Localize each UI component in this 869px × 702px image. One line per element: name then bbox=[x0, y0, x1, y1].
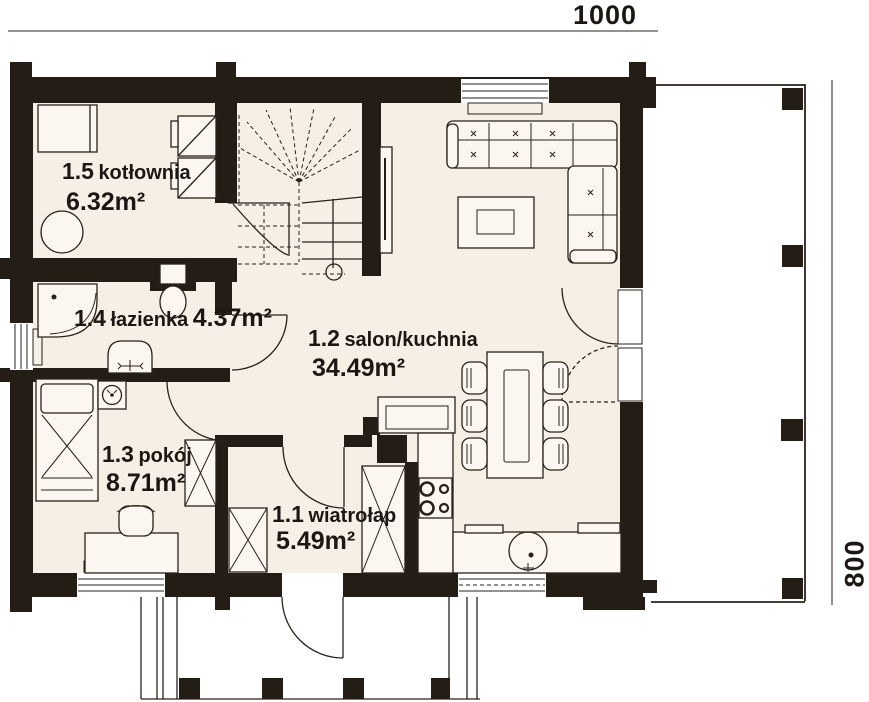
tv-cabinet bbox=[380, 147, 392, 253]
room-label-boiler-room: 1.5 kotłownia bbox=[62, 160, 191, 183]
room-area: 4.37m² bbox=[193, 304, 272, 332]
room-code: 1.3 bbox=[102, 441, 134, 467]
room-area-living-kitchen: 34.49m² bbox=[312, 356, 405, 381]
coffee-table bbox=[458, 197, 534, 248]
room-code: 1.1 bbox=[272, 501, 304, 527]
room-code: 1.5 bbox=[62, 158, 94, 184]
bed bbox=[36, 379, 98, 501]
floor-plan-drawing bbox=[0, 0, 869, 702]
porch-post bbox=[431, 678, 450, 699]
dining-table bbox=[487, 352, 543, 478]
dimension-depth: 800 bbox=[842, 529, 869, 599]
terrace-post bbox=[781, 419, 803, 441]
dimension-width: 1000 bbox=[560, 2, 650, 29]
window-kitchen-bottom bbox=[458, 573, 546, 597]
room-code: 1.2 bbox=[308, 325, 340, 351]
room-name: wiatrołap bbox=[308, 505, 396, 527]
room-label-bathroom: 1.4 łazienka 4.37m² bbox=[74, 306, 272, 331]
room-area-vestibule: 5.49m² bbox=[276, 529, 355, 554]
room-name: pokój bbox=[138, 445, 191, 467]
washbasin bbox=[108, 341, 152, 373]
storage-shelf bbox=[171, 116, 216, 156]
nightstand bbox=[98, 381, 126, 409]
door-entrance bbox=[282, 573, 343, 658]
room-label-bedroom: 1.3 pokój bbox=[102, 443, 192, 466]
desk bbox=[85, 533, 178, 573]
terrace bbox=[645, 85, 805, 602]
terrace-post bbox=[782, 245, 803, 267]
terrace-post bbox=[782, 88, 803, 110]
chimney bbox=[377, 435, 407, 463]
porch-post bbox=[343, 678, 364, 699]
desk-chair bbox=[117, 506, 155, 537]
room-name: kotłownia bbox=[98, 162, 190, 184]
room-area-boiler-room: 6.32m² bbox=[66, 190, 145, 215]
room-code: 1.4 bbox=[74, 305, 106, 331]
room-name: łazienka bbox=[110, 309, 188, 331]
terrace-post bbox=[782, 578, 803, 599]
floor-plan: 1.5 kotłownia 6.32m² 1.4 łazienka 4.37m²… bbox=[0, 0, 869, 702]
cabinet bbox=[38, 105, 97, 152]
room-area-bedroom: 8.71m² bbox=[106, 471, 185, 496]
room-label-living-kitchen: 1.2 salon/kuchnia bbox=[308, 327, 478, 350]
room-name: salon/kuchnia bbox=[344, 329, 477, 351]
boiler bbox=[41, 211, 83, 253]
porch-post bbox=[179, 678, 200, 699]
porch-post bbox=[262, 678, 283, 699]
vestibule-cabinet bbox=[229, 508, 267, 572]
room-label-vestibule: 1.1 wiatrołap bbox=[272, 503, 396, 526]
